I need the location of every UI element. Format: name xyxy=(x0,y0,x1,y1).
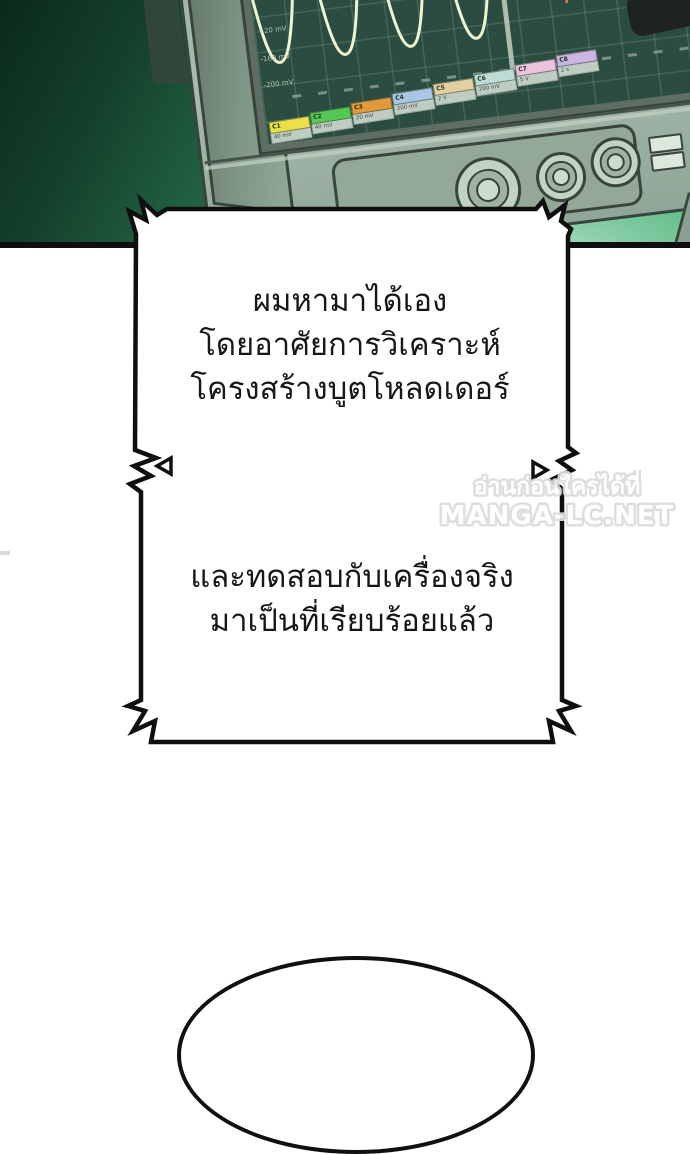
channel-chip: C7 5 V xyxy=(515,59,559,87)
dialogue-line: โดยอาศัยการวิเคราะห์ xyxy=(199,323,501,367)
dialogue-line: มาเป็นที่เรียบร้อยแล้ว xyxy=(210,599,495,643)
channel-chip: C2 40 mV xyxy=(309,106,353,134)
oscilloscope: -40 mV -80 mV -120 mV -160 mV -200 mV C1… xyxy=(118,0,690,248)
scene-oscilloscope-panel: -40 mV -80 mV -120 mV -160 mV -200 mV C1… xyxy=(0,0,690,248)
burst-wave xyxy=(538,0,593,6)
dialogue-line: ผมหามาได้เอง xyxy=(253,279,447,323)
partial-speech-bubble xyxy=(177,956,535,1154)
dialogue-line: โครงสร้างบูตโหลดเดอร์ xyxy=(190,367,509,411)
dialogue-line: และทดสอบกับเครื่องจริง xyxy=(190,555,514,599)
watermark-site-name: MANGA-LC.NET xyxy=(440,501,675,531)
speech-bubble-1-text: ผมหามาได้เอง โดยอาศัยการวิเคราะห์ โครงสร… xyxy=(138,256,562,434)
oscilloscope-left-frame-window xyxy=(135,0,188,83)
channel-chip: C6 200 mV xyxy=(474,68,518,96)
joint-triangle-left xyxy=(157,458,171,474)
site-watermark: อ่านก่อนใครได้ที่ MANGA-LC.NET xyxy=(426,470,688,536)
watermark-thai-line: อ่านก่อนใครได้ที่ xyxy=(474,470,641,500)
speech-bubble-2-text: และทดสอบกับเครื่องจริง มาเป็นที่เรียบร้อ… xyxy=(142,540,562,658)
channel-chip: C8 2 s xyxy=(556,49,600,77)
left-edge-mark xyxy=(0,551,10,555)
